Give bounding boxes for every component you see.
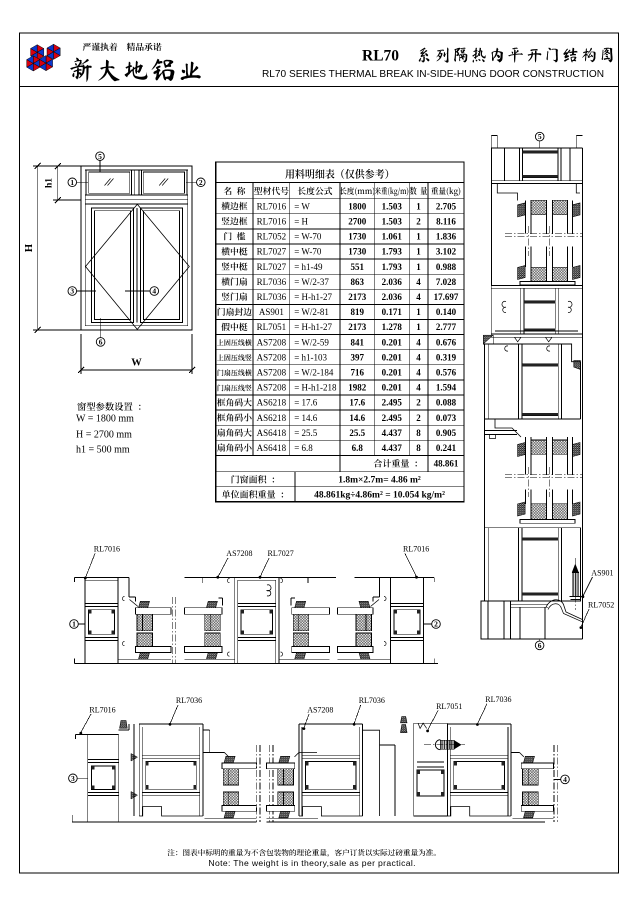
svg-text:1982: 1982 bbox=[348, 383, 367, 393]
svg-text:0.676: 0.676 bbox=[436, 337, 457, 347]
svg-text:W: W bbox=[131, 358, 142, 369]
svg-text:1730: 1730 bbox=[348, 232, 367, 242]
svg-text:1: 1 bbox=[416, 307, 421, 317]
svg-text:= H: = H bbox=[294, 216, 308, 226]
svg-text:0.576: 0.576 bbox=[436, 367, 457, 377]
svg-text:0.171: 0.171 bbox=[382, 307, 403, 317]
svg-text:H = 2700 mm: H = 2700 mm bbox=[76, 429, 132, 440]
svg-text:= W/2-81: = W/2-81 bbox=[294, 307, 329, 317]
svg-text:6: 6 bbox=[99, 338, 103, 347]
svg-text:= 17.6: = 17.6 bbox=[294, 398, 318, 408]
svg-text:Note: The weight is in the: Note: The weight is in theory,sale as pe… bbox=[208, 858, 416, 868]
svg-text:3: 3 bbox=[70, 287, 74, 296]
svg-text:1730: 1730 bbox=[348, 247, 367, 257]
svg-text:AS7208: AS7208 bbox=[257, 367, 287, 377]
svg-text:AS6218: AS6218 bbox=[257, 398, 287, 408]
svg-text:= H-h1-27: = H-h1-27 bbox=[294, 322, 332, 332]
svg-text:1.061: 1.061 bbox=[382, 232, 403, 242]
svg-text:RL7051: RL7051 bbox=[257, 322, 287, 332]
svg-text:8.116: 8.116 bbox=[436, 216, 456, 226]
svg-text:AS7208: AS7208 bbox=[226, 549, 252, 558]
svg-text:1.278: 1.278 bbox=[382, 322, 403, 332]
svg-text:6.8: 6.8 bbox=[352, 443, 364, 453]
svg-text:1.503: 1.503 bbox=[382, 216, 403, 226]
svg-text:4.437: 4.437 bbox=[382, 443, 403, 453]
svg-text:= W: = W bbox=[294, 201, 310, 211]
svg-text:819: 819 bbox=[350, 307, 364, 317]
svg-text:2173: 2173 bbox=[348, 322, 367, 332]
svg-text:1: 1 bbox=[416, 322, 421, 332]
svg-text:0.088: 0.088 bbox=[436, 398, 457, 408]
svg-text:AS6418: AS6418 bbox=[257, 443, 287, 453]
svg-text:2: 2 bbox=[434, 620, 438, 629]
svg-text:2.495: 2.495 bbox=[382, 413, 403, 423]
svg-text:2.705: 2.705 bbox=[436, 201, 457, 211]
svg-text:2.036: 2.036 bbox=[382, 292, 403, 302]
svg-text:= W-70: = W-70 bbox=[294, 247, 322, 257]
svg-text:0.140: 0.140 bbox=[436, 307, 457, 317]
svg-text:3: 3 bbox=[71, 774, 75, 783]
svg-text:= W/2-184: = W/2-184 bbox=[294, 367, 334, 377]
svg-text:1: 1 bbox=[416, 247, 421, 257]
svg-text:4: 4 bbox=[416, 367, 421, 377]
svg-text:RL70: RL70 bbox=[362, 48, 399, 65]
svg-text:48.861kg÷4.86m² = 10.054 kg/m: 48.861kg÷4.86m² = 10.054 kg/m² bbox=[314, 491, 445, 501]
svg-text:25.5: 25.5 bbox=[349, 428, 365, 438]
svg-text:2: 2 bbox=[199, 178, 203, 187]
svg-text:= H-h1-27: = H-h1-27 bbox=[294, 292, 332, 302]
svg-text:H: H bbox=[24, 244, 35, 252]
svg-text:= h1-49: = h1-49 bbox=[294, 262, 323, 272]
svg-text:1.594: 1.594 bbox=[436, 383, 457, 393]
svg-text:AS7208: AS7208 bbox=[257, 383, 287, 393]
svg-text:0.319: 0.319 bbox=[436, 352, 457, 362]
svg-text:3.102: 3.102 bbox=[436, 247, 457, 257]
svg-text:AS7208: AS7208 bbox=[257, 337, 287, 347]
svg-text:RL7027: RL7027 bbox=[257, 262, 287, 272]
svg-text:RL7051: RL7051 bbox=[436, 702, 462, 711]
svg-text:1.503: 1.503 bbox=[382, 201, 403, 211]
svg-text:= H-h1-218: = H-h1-218 bbox=[294, 383, 337, 393]
svg-text:2: 2 bbox=[416, 216, 421, 226]
svg-text:= 25.5: = 25.5 bbox=[294, 428, 318, 438]
svg-text:0.201: 0.201 bbox=[382, 383, 403, 393]
svg-text:2173: 2173 bbox=[348, 292, 367, 302]
svg-text:4: 4 bbox=[416, 383, 421, 393]
svg-text:RL7016: RL7016 bbox=[94, 545, 120, 554]
svg-text:551: 551 bbox=[350, 262, 364, 272]
svg-text:17.6: 17.6 bbox=[349, 398, 365, 408]
svg-text:0.201: 0.201 bbox=[382, 352, 403, 362]
svg-text:1: 1 bbox=[72, 620, 76, 629]
svg-text:RL7052: RL7052 bbox=[257, 232, 287, 242]
svg-text:0.988: 0.988 bbox=[436, 262, 457, 272]
svg-text:AS7208: AS7208 bbox=[307, 705, 333, 714]
svg-text:7.028: 7.028 bbox=[436, 277, 457, 287]
svg-text:0.241: 0.241 bbox=[436, 443, 457, 453]
svg-text:AS901: AS901 bbox=[591, 568, 613, 577]
svg-text:0.201: 0.201 bbox=[382, 337, 403, 347]
svg-text:716: 716 bbox=[350, 367, 364, 377]
svg-text:2.777: 2.777 bbox=[436, 322, 457, 332]
svg-text:AS901: AS901 bbox=[259, 307, 284, 317]
svg-text:h1 = 500 mm: h1 = 500 mm bbox=[76, 445, 130, 456]
svg-text:RL7027: RL7027 bbox=[268, 549, 294, 558]
svg-text:4: 4 bbox=[563, 775, 567, 784]
svg-text:397: 397 bbox=[350, 352, 364, 362]
svg-text:AS7208: AS7208 bbox=[257, 352, 287, 362]
svg-text:0.905: 0.905 bbox=[436, 428, 457, 438]
svg-text:= 6.8: = 6.8 bbox=[294, 443, 313, 453]
svg-text:2.495: 2.495 bbox=[382, 398, 403, 408]
svg-text:4.437: 4.437 bbox=[382, 428, 403, 438]
svg-text:2: 2 bbox=[416, 398, 421, 408]
svg-text:W = 1800 mm: W = 1800 mm bbox=[76, 413, 134, 424]
svg-text:2.036: 2.036 bbox=[382, 277, 403, 287]
svg-text:RL7052: RL7052 bbox=[588, 600, 614, 609]
svg-text:RL7027: RL7027 bbox=[257, 247, 287, 257]
svg-text:8: 8 bbox=[416, 428, 421, 438]
svg-text:RL7036: RL7036 bbox=[485, 695, 511, 704]
svg-text:2700: 2700 bbox=[348, 216, 367, 226]
svg-text:= W/2-37: = W/2-37 bbox=[294, 277, 329, 287]
svg-text:841: 841 bbox=[350, 337, 364, 347]
svg-text:RL7016: RL7016 bbox=[403, 545, 429, 554]
svg-text:1: 1 bbox=[416, 201, 421, 211]
svg-text:1.836: 1.836 bbox=[436, 232, 457, 242]
svg-text:4: 4 bbox=[416, 352, 421, 362]
svg-text:1.793: 1.793 bbox=[382, 262, 403, 272]
svg-text:48.861: 48.861 bbox=[434, 459, 459, 469]
svg-text:1: 1 bbox=[416, 232, 421, 242]
svg-text:5: 5 bbox=[98, 152, 102, 161]
svg-text:0.073: 0.073 bbox=[436, 413, 457, 423]
svg-text:17.697: 17.697 bbox=[434, 292, 459, 302]
svg-text:RL7036: RL7036 bbox=[257, 292, 287, 302]
svg-text:AS6418: AS6418 bbox=[257, 428, 287, 438]
svg-text:1.8m×2.7m= 4.86 m²: 1.8m×2.7m= 4.86 m² bbox=[338, 476, 421, 486]
svg-text:6: 6 bbox=[538, 641, 542, 650]
svg-text:= W/2-59: = W/2-59 bbox=[294, 337, 329, 347]
svg-text:1.793: 1.793 bbox=[382, 247, 403, 257]
svg-text:= h1-103: = h1-103 bbox=[294, 352, 327, 362]
svg-text:RL7036: RL7036 bbox=[257, 277, 287, 287]
svg-text:= 14.6: = 14.6 bbox=[294, 413, 318, 423]
svg-text:4: 4 bbox=[416, 337, 421, 347]
svg-text:RL70 SERIES THERMAL BREAK IN-S: RL70 SERIES THERMAL BREAK IN-SIDE-HUNG D… bbox=[262, 69, 604, 80]
svg-text:AS6218: AS6218 bbox=[257, 413, 287, 423]
svg-text:8: 8 bbox=[416, 443, 421, 453]
svg-text:4: 4 bbox=[416, 277, 421, 287]
svg-text:1800: 1800 bbox=[348, 201, 367, 211]
svg-text:4: 4 bbox=[416, 292, 421, 302]
svg-text:14.6: 14.6 bbox=[349, 413, 365, 423]
svg-text:h1: h1 bbox=[45, 178, 55, 188]
svg-text:2: 2 bbox=[416, 413, 421, 423]
svg-text:5: 5 bbox=[538, 132, 542, 141]
svg-text:1: 1 bbox=[70, 178, 74, 187]
svg-text:0.201: 0.201 bbox=[382, 367, 403, 377]
svg-text:RL7036: RL7036 bbox=[359, 696, 385, 705]
svg-text:RL7036: RL7036 bbox=[176, 696, 202, 705]
svg-text:863: 863 bbox=[350, 277, 364, 287]
svg-text:4: 4 bbox=[152, 287, 156, 296]
svg-text:RL7016: RL7016 bbox=[257, 216, 287, 226]
svg-text:RL7016: RL7016 bbox=[89, 705, 115, 714]
svg-text:1: 1 bbox=[416, 262, 421, 272]
svg-text:= W-70: = W-70 bbox=[294, 232, 322, 242]
svg-text:RL7016: RL7016 bbox=[257, 201, 287, 211]
